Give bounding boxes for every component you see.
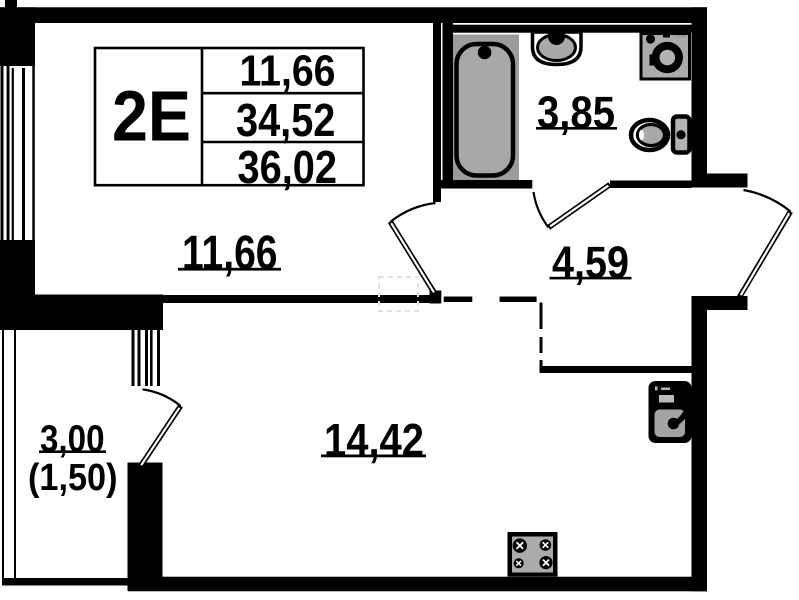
svg-text:(1,50): (1,50)	[28, 457, 118, 499]
svg-text:14,42: 14,42	[324, 414, 424, 466]
svg-text:11,66: 11,66	[182, 227, 278, 280]
svg-text:34,52: 34,52	[236, 94, 335, 146]
svg-text:36,02: 36,02	[238, 141, 338, 193]
svg-text:11,66: 11,66	[240, 47, 336, 96]
svg-text:3,00: 3,00	[40, 419, 105, 461]
svg-text:4,59: 4,59	[552, 237, 629, 288]
svg-text:2E: 2E	[112, 78, 191, 157]
svg-text:3,85: 3,85	[537, 87, 615, 138]
